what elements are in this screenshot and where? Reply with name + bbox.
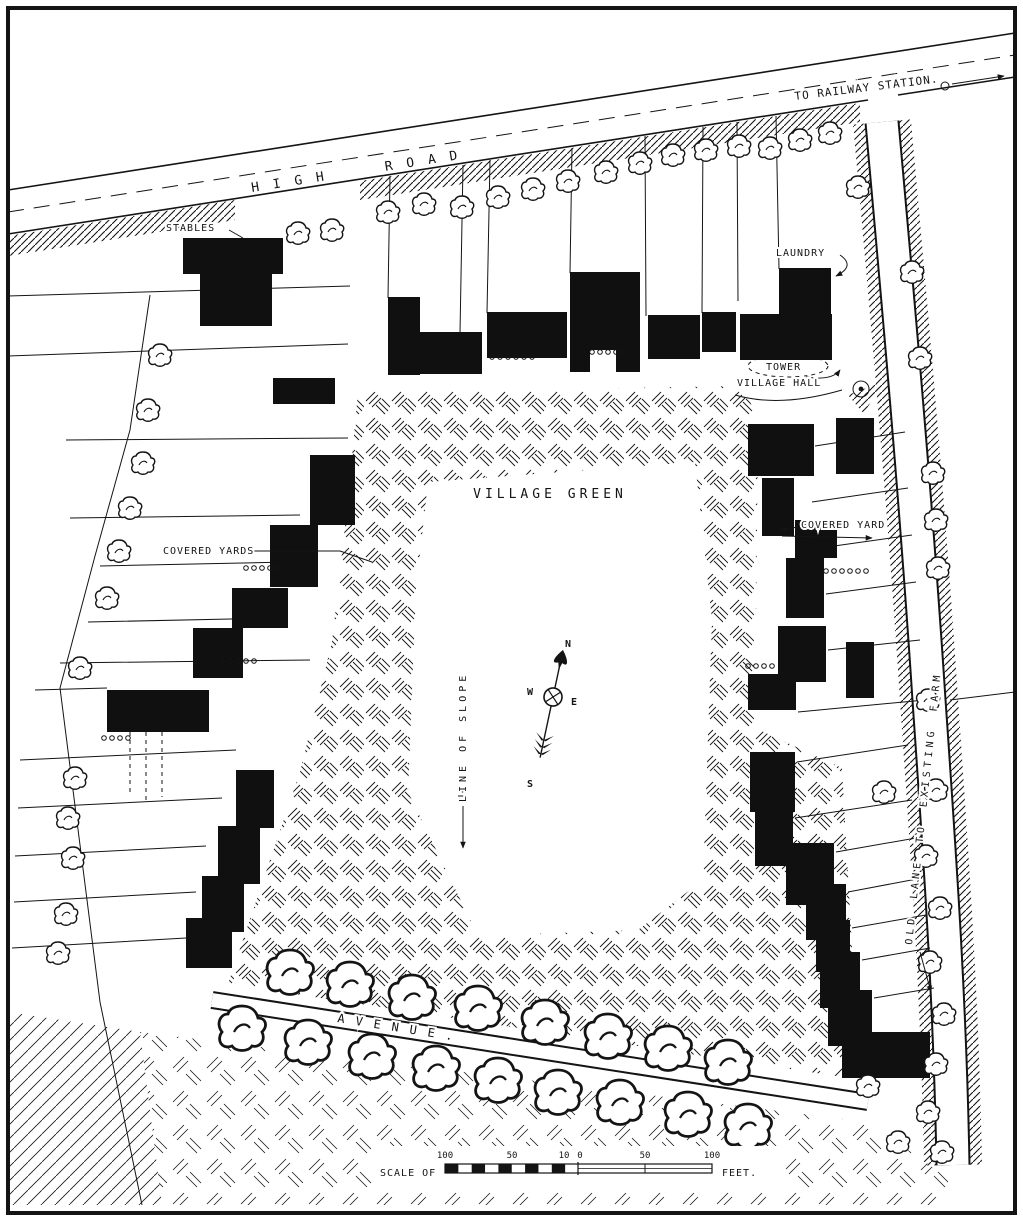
village-hall-label: VILLAGE HALL — [737, 378, 821, 389]
building — [762, 478, 794, 536]
terrace-house — [186, 918, 232, 968]
covered-yard-right-label: COVERED YARD — [801, 520, 885, 531]
line-of-slope-label: LINE OF SLOPE — [458, 672, 469, 802]
building — [232, 588, 288, 628]
building — [107, 690, 209, 732]
scale-segment — [525, 1164, 538, 1173]
village-green-label: VILLAGE GREEN — [473, 487, 627, 502]
covered-yards-left-label: COVERED YARDS — [163, 546, 254, 557]
terrace-house — [236, 770, 274, 828]
site-plan-page: N W E S TO RAILWAY STATION. HIGH ROAD ST… — [0, 0, 1023, 1221]
scale-tick-label: 0 — [577, 1151, 582, 1161]
building — [836, 418, 874, 474]
stables-building — [183, 238, 283, 274]
building — [310, 455, 355, 525]
building — [748, 674, 796, 710]
terrace-house — [218, 826, 260, 884]
scale-tick-label: 10 — [559, 1151, 570, 1161]
building — [193, 628, 243, 678]
building — [273, 378, 335, 404]
compass-south-label: S — [527, 779, 533, 790]
scale-segment — [472, 1164, 485, 1173]
building — [388, 297, 420, 375]
scale-tick-label: 100 — [437, 1151, 453, 1161]
terrace-house — [750, 752, 795, 812]
scale-prefix-label: SCALE OF — [380, 1168, 436, 1179]
building — [420, 332, 482, 374]
laundry-label: LAUNDRY — [776, 248, 825, 259]
scale-segment — [498, 1164, 511, 1173]
village-plan-svg: N W E S TO RAILWAY STATION. HIGH ROAD ST… — [0, 0, 1023, 1221]
tower-label: TOWER — [766, 362, 801, 373]
building — [487, 312, 567, 358]
building — [778, 626, 826, 682]
compass-north-label: N — [565, 639, 571, 650]
scale-tick-label: 50 — [507, 1151, 518, 1161]
building — [846, 642, 874, 698]
building — [748, 424, 814, 476]
stables-label: STABLES — [166, 223, 215, 234]
compass-east-label: E — [571, 697, 577, 708]
compass-west-label: W — [527, 687, 534, 698]
building — [786, 558, 824, 618]
scale-segment — [445, 1164, 458, 1173]
scale-bar: SCALE OF 100 50 10 0 50 100 FEET. — [372, 1146, 786, 1188]
scale-tick-label: 100 — [704, 1151, 720, 1161]
scale-tick-label: 50 — [640, 1151, 651, 1161]
stables-building — [200, 272, 272, 326]
bottom-left-field-hatching — [8, 1012, 162, 1205]
scale-suffix-label: FEET. — [722, 1168, 757, 1179]
building — [270, 525, 318, 587]
terrace-house — [842, 1032, 930, 1078]
building — [648, 315, 700, 359]
building — [702, 312, 736, 352]
village-hall-building — [740, 314, 832, 360]
well-center — [859, 387, 864, 392]
scale-segment — [552, 1164, 565, 1173]
